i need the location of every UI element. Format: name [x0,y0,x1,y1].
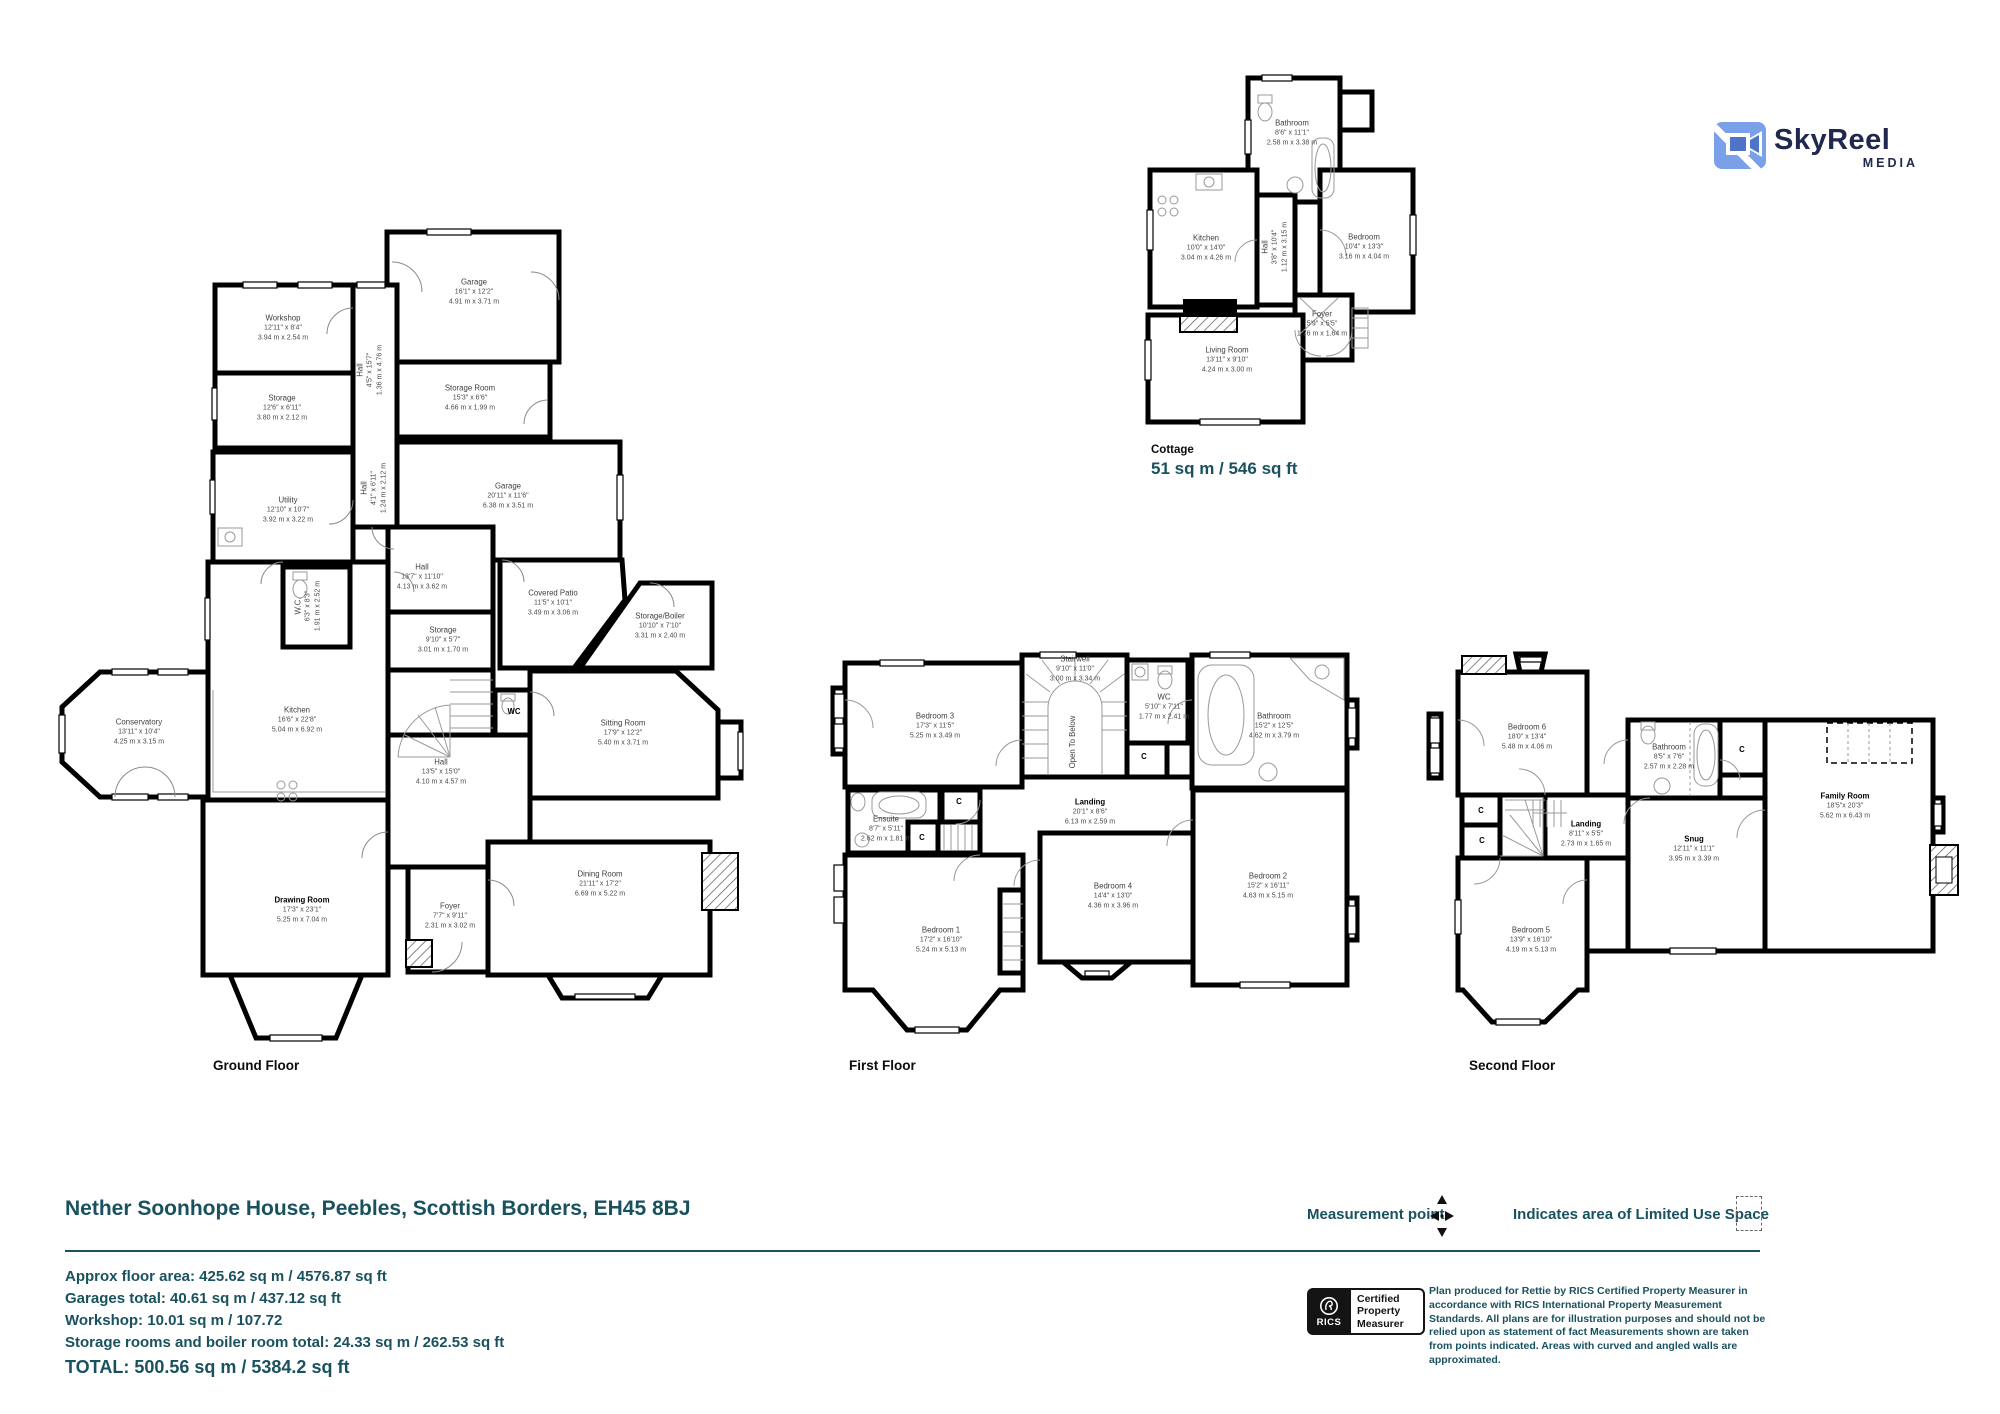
room-dining [488,842,710,975]
label-garage1: Garage16'1" x 12'2"4.91 m x 3.71 m [449,278,499,307]
room-drawing [203,800,388,975]
closet-marker: C [919,833,925,843]
second-floor-caption: Second Floor [1469,1058,1555,1073]
brand-name: SkyReel [1774,124,1890,157]
label-open-to-below: Open To Below [1068,716,1078,769]
label-storage2: Storage9'10" x 5'7"3.01 m x 1.70 m [418,626,468,655]
label-boiler: Storage/Boiler10'10" x 7'10"3.31 m x 2.4… [635,612,685,641]
label-utility: Utility12'10" x 10'7"3.92 m x 3.22 m [263,496,313,525]
floorplan-page: SkyReel MEDIA [0,0,2000,1414]
brand-sub: MEDIA [1774,156,1918,170]
summary-total: TOTAL: 500.56 sq m / 5384.2 sq ft [65,1356,504,1378]
disclaimer-text: Plan produced for Rettie by RICS Certifi… [1429,1285,1767,1368]
label-bed2: Bedroom 215'2" x 16'11"4.63 m x 5.15 m [1243,872,1293,901]
label-cliving: Living Room13'11" x 9'10"4.24 m x 3.00 m [1202,346,1252,375]
label-flanding: Landing20'1" x 8'6"6.13 m x 2.59 m [1065,798,1115,827]
first-floor-caption: First Floor [849,1058,916,1073]
label-patio: Covered Patio11'5" x 10'1"3.49 m x 3.06 … [528,589,578,618]
room-snug [1628,798,1765,951]
label-garage2: Garage20'11" x 11'6"6.38 m x 3.51 m [483,482,533,511]
limited-use-icon [1736,1196,1762,1231]
label-fwc: WC5'10" x 7'11"1.77 m x 2.41 m [1139,693,1189,722]
second-winder [1500,795,1545,858]
chimney-dining [702,853,738,910]
label-bed6: Bedroom 618'0" x 13'4"5.48 m x 4.06 m [1502,723,1552,752]
label-cbath: Bathroom8'6" x 11'1"2.58 m x 3.38 m [1267,119,1317,148]
label-hall2: Hall4'1" x 6'11"1.24 m x 2.12 m [360,463,389,513]
chimney-flue [1936,857,1952,883]
limited-use-label: Indicates area of Limited Use Space [1513,1206,1769,1223]
divider-line [65,1250,1760,1252]
label-conservatory: Conservatory13'11" x 10'4"4.25 m x 3.15 … [114,718,164,747]
summary-line: Storage rooms and boiler room total: 24.… [65,1332,504,1354]
label-sitting: Sitting Room17'9" x 12'2"5.40 m x 3.71 m [598,719,648,748]
label-storage1: Storage12'6" x 6'11"3.80 m x 2.12 m [257,394,307,423]
measurement-point-icon [1428,1195,1456,1237]
label-family: Family Room18'5"x 20'3"5.62 m x 6.43 m [1820,792,1870,821]
wall-chunk [1183,299,1237,313]
label-wc1: W.C.6'3" x 8'3"1.91 m x 2.52 m [294,581,323,631]
closet-marker: C [1479,836,1485,846]
skyreel-logo-icon [1712,120,1768,172]
ground-floor-caption: Ground Floor [213,1058,299,1073]
chimney-cottage [1180,316,1237,332]
area-summary: Approx floor area: 425.62 sq m / 4576.87… [65,1266,504,1378]
chimney-bed6 [1462,656,1506,674]
rics-logo: RICS [1307,1288,1351,1335]
summary-line: Workshop: 10.01 sq m / 107.72 [65,1310,504,1332]
landing-connector [1587,858,1628,951]
label-wc2: WC [508,707,521,717]
label-hall3: Hall13'7" x 11'10"4.13 m x 3.62 m [397,563,447,592]
rics-line: Measurer [1357,1318,1423,1330]
label-kitchen: Kitchen16'6" x 22'8"5.04 m x 6.92 m [272,706,322,735]
summary-line: Approx floor area: 425.62 sq m / 4576.87… [65,1266,504,1288]
label-ckitchen: Kitchen10'0" x 14'0"3.04 m x 4.26 m [1181,234,1231,263]
label-storageroom: Storage Room15'3" x 6'6"4.66 m x 1.99 m [445,384,495,413]
label-chall: Hall3'8" x 10'4"1.12 m x 3.15 m [1261,222,1290,272]
label-workshop: Workshop12'11" x 8'4"3.94 m x 2.54 m [258,314,308,343]
label-foyer1: Foyer7'7" x 9'11"2.31 m x 3.02 m [425,902,475,931]
label-bed5: Bedroom 513'9" x 16'10"4.19 m x 5.13 m [1506,926,1556,955]
closet-marker: C [956,797,962,807]
closet-marker: C [1478,806,1484,816]
label-snug: Snug12'11" x 11'1"3.95 m x 3.39 m [1669,835,1719,864]
measurement-point-label: Measurement point [1307,1206,1445,1223]
rics-badge: RICS Certified Property Measurer [1307,1288,1425,1335]
chimney-foyer [406,940,432,967]
rics-badge-text: Certified Property Measurer [1351,1288,1425,1335]
label-drawing: Drawing Room17'3" x 23'1"5.25 m x 7.04 m [274,896,329,925]
label-bed3: Bedroom 317'3" x 11'5"5.25 m x 3.49 m [910,712,960,741]
cottage-caption: Cottage [1151,444,1194,456]
label-slanding: Landing8'11" x 5'5"2.73 m x 1.65 m [1561,820,1611,849]
page-title: Nether Soonhope House, Peebles, Scottish… [65,1197,691,1221]
room-family [1765,720,1933,951]
rics-line: Property [1357,1305,1423,1317]
label-fbath: Bathroom15'2" x 12'5"4.62 m x 3.79 m [1249,712,1299,741]
cbath-ext [1340,92,1372,130]
closet-marker: C [1739,745,1745,755]
rics-lion-icon [1319,1296,1339,1316]
closet-marker: C [1141,752,1147,762]
label-sbath: Bathroom8'5" x 7'6"2.57 m x 2.28 m [1644,743,1694,772]
label-stairwell: Stairwell9'10" x 11'0"3.00 m x 3.34 m [1050,655,1100,684]
label-cbed: Bedroom10'4" x 13'3"3.16 m x 4.04 m [1339,233,1389,262]
label-bed1: Bedroom 117'2" x 16'10"5.24 m x 5.13 m [916,926,966,955]
rics-org: RICS [1317,1317,1342,1328]
label-cfoyer: Foyer5'9" x 5'5"1.76 m x 1.64 m [1297,310,1347,339]
drawing-bay [230,975,362,1038]
rics-line: Certified [1357,1293,1423,1305]
label-bed4: Bedroom 414'4" x 13'0"4.36 m x 3.96 m [1088,882,1138,911]
label-ensuite: Ensuite8'7" x 5'11"2.62 m x 1.81 m [861,815,911,844]
label-dining: Dining Room21'11" x 17'2"6.69 m x 5.22 m [575,870,625,899]
summary-line: Garages total: 40.61 sq m / 437.12 sq ft [65,1288,504,1310]
cottage-area: 51 sq m / 546 sq ft [1151,459,1297,479]
label-hall4: Hall13'5" x 15'0"4.10 m x 4.57 m [416,758,466,787]
label-hall1: Hall4'5" x 15'7"1.36 m x 4.76 m [356,345,385,395]
